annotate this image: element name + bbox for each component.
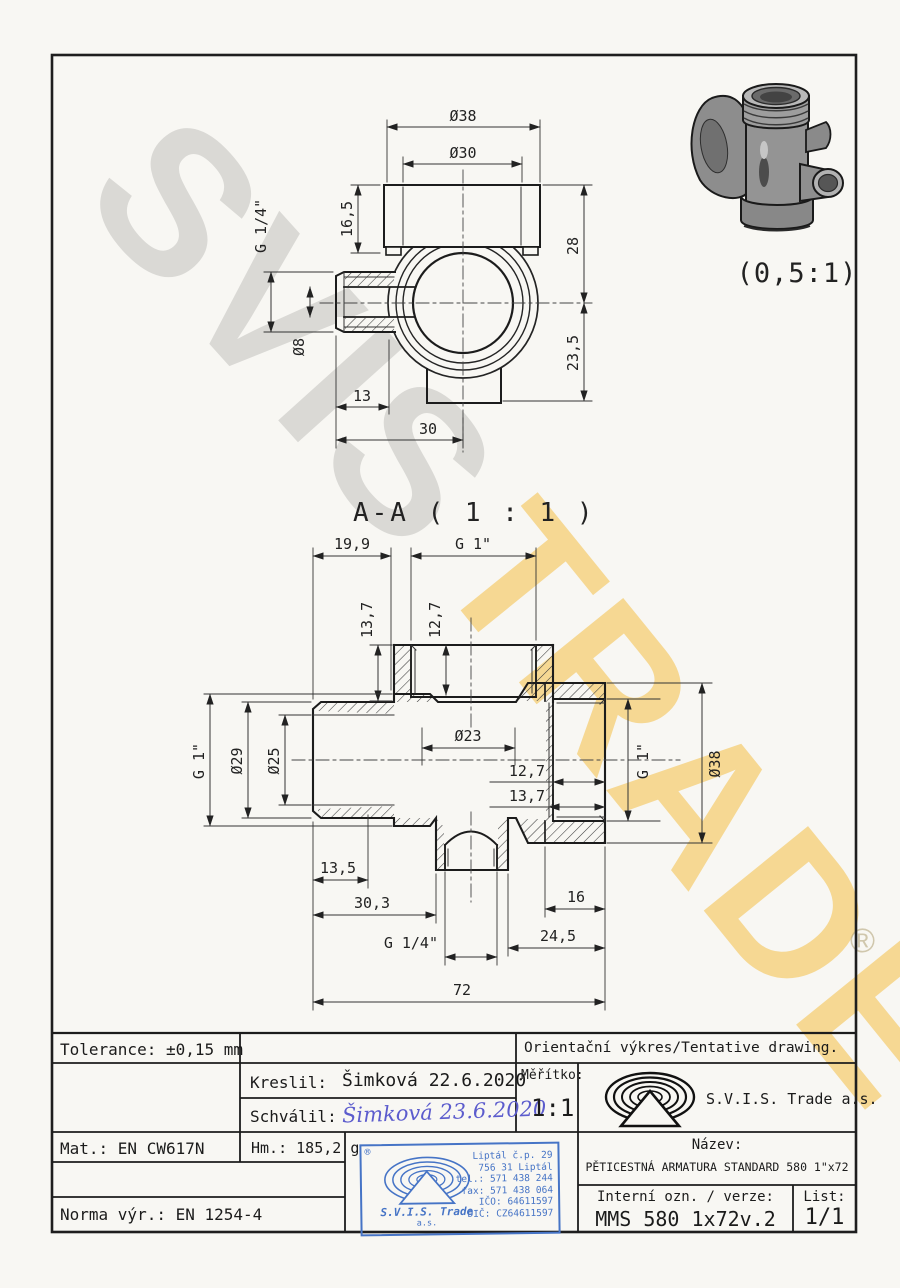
company-name: S.V.I.S. Trade a.s. <box>706 1090 878 1108</box>
stamp-address: Liptál č.p. 29 756 31 Liptál tel.: 571 4… <box>455 1150 553 1221</box>
list-value: 1/1 <box>793 1205 856 1230</box>
stamp-address-line: tel.: 571 438 244 <box>456 1173 553 1186</box>
material-field: Mat.: EN CW617N <box>60 1139 205 1158</box>
meritko-value: 1:1 <box>531 1094 574 1122</box>
watermark-registered-icon: ® <box>850 922 875 960</box>
dim-72: 72 <box>453 981 471 999</box>
list-label: List: <box>793 1189 856 1205</box>
dim-30: 30 <box>419 420 437 438</box>
dim-30-3: 30,3 <box>354 894 390 912</box>
dim-28: 28 <box>564 237 582 255</box>
dim-g1-right: G 1" <box>634 743 652 779</box>
stamp-registered-icon: ® <box>364 1147 370 1158</box>
dim-12-7-top: 12,7 <box>426 602 444 638</box>
interni-label: Interní ozn. / verze: <box>578 1189 793 1205</box>
dim-d25: Ø25 <box>265 747 283 774</box>
schvalil-label: Schválil: <box>250 1107 337 1126</box>
dim-16: 16 <box>567 888 585 906</box>
dim-19-9: 19,9 <box>334 535 370 553</box>
dim-d30: Ø30 <box>449 144 476 162</box>
dim-24-5: 24,5 <box>540 927 576 945</box>
dim-16-5: 16,5 <box>338 201 356 237</box>
kreslil-label: Kreslil: <box>250 1073 327 1092</box>
section-title: A-A ( 1 : 1 ) <box>353 498 596 528</box>
dim-d38-right: Ø38 <box>706 750 724 777</box>
dim-d8: Ø8 <box>290 338 308 356</box>
dim-13-7-right: 13,7 <box>509 787 545 805</box>
dim-13: 13 <box>353 387 371 405</box>
nazev-label: Název: <box>578 1137 856 1153</box>
interni-value: MMS 580 1x72v.2 <box>578 1207 793 1231</box>
norma-field: Norma výr.: EN 1254-4 <box>60 1205 262 1224</box>
dim-23-5: 23,5 <box>564 335 582 371</box>
dim-13-7-top: 13,7 <box>358 602 376 638</box>
detail-3d-view: (0,5:1) <box>691 84 857 289</box>
drawing-page: SVIS TRADE ® <box>0 0 900 1288</box>
dim-d38: Ø38 <box>449 107 476 125</box>
dim-g14-bottom: G 1/4" <box>384 934 438 952</box>
dim-g1-top: G 1" <box>455 535 491 553</box>
meritko-label: Měřítko: <box>521 1068 584 1083</box>
dim-g1-left: G 1" <box>190 743 208 779</box>
tolerance-field: Tolerance: ±0,15 mm <box>60 1040 243 1059</box>
nazev-value: PĚTICESTNÁ ARMATURA STANDARD 580 1"x72 <box>580 1160 854 1174</box>
dim-d29: Ø29 <box>228 747 246 774</box>
stamp-address-line: DIČ: CZ64611597 <box>456 1208 553 1221</box>
stamp-address-line: Liptál č.p. 29 <box>455 1150 552 1163</box>
kreslil-value: Šimková 22.6.2020 <box>342 1070 526 1091</box>
dim-d23: Ø23 <box>454 727 481 745</box>
dim-g14: G 1/4" <box>252 199 270 253</box>
dim-12-7-right: 12,7 <box>509 762 545 780</box>
company-stamp: ® S.V.I.S. Trade a.s. Liptál č.p. 29 756… <box>359 1142 560 1237</box>
dim-13-5: 13,5 <box>320 859 356 877</box>
svis-logo <box>606 1073 694 1126</box>
orientacni-note: Orientační výkres/Tentative drawing. <box>524 1040 838 1056</box>
detail-scale-label: (0,5:1) <box>737 258 858 289</box>
weight-field: Hm.: 185,2 g <box>251 1139 359 1157</box>
